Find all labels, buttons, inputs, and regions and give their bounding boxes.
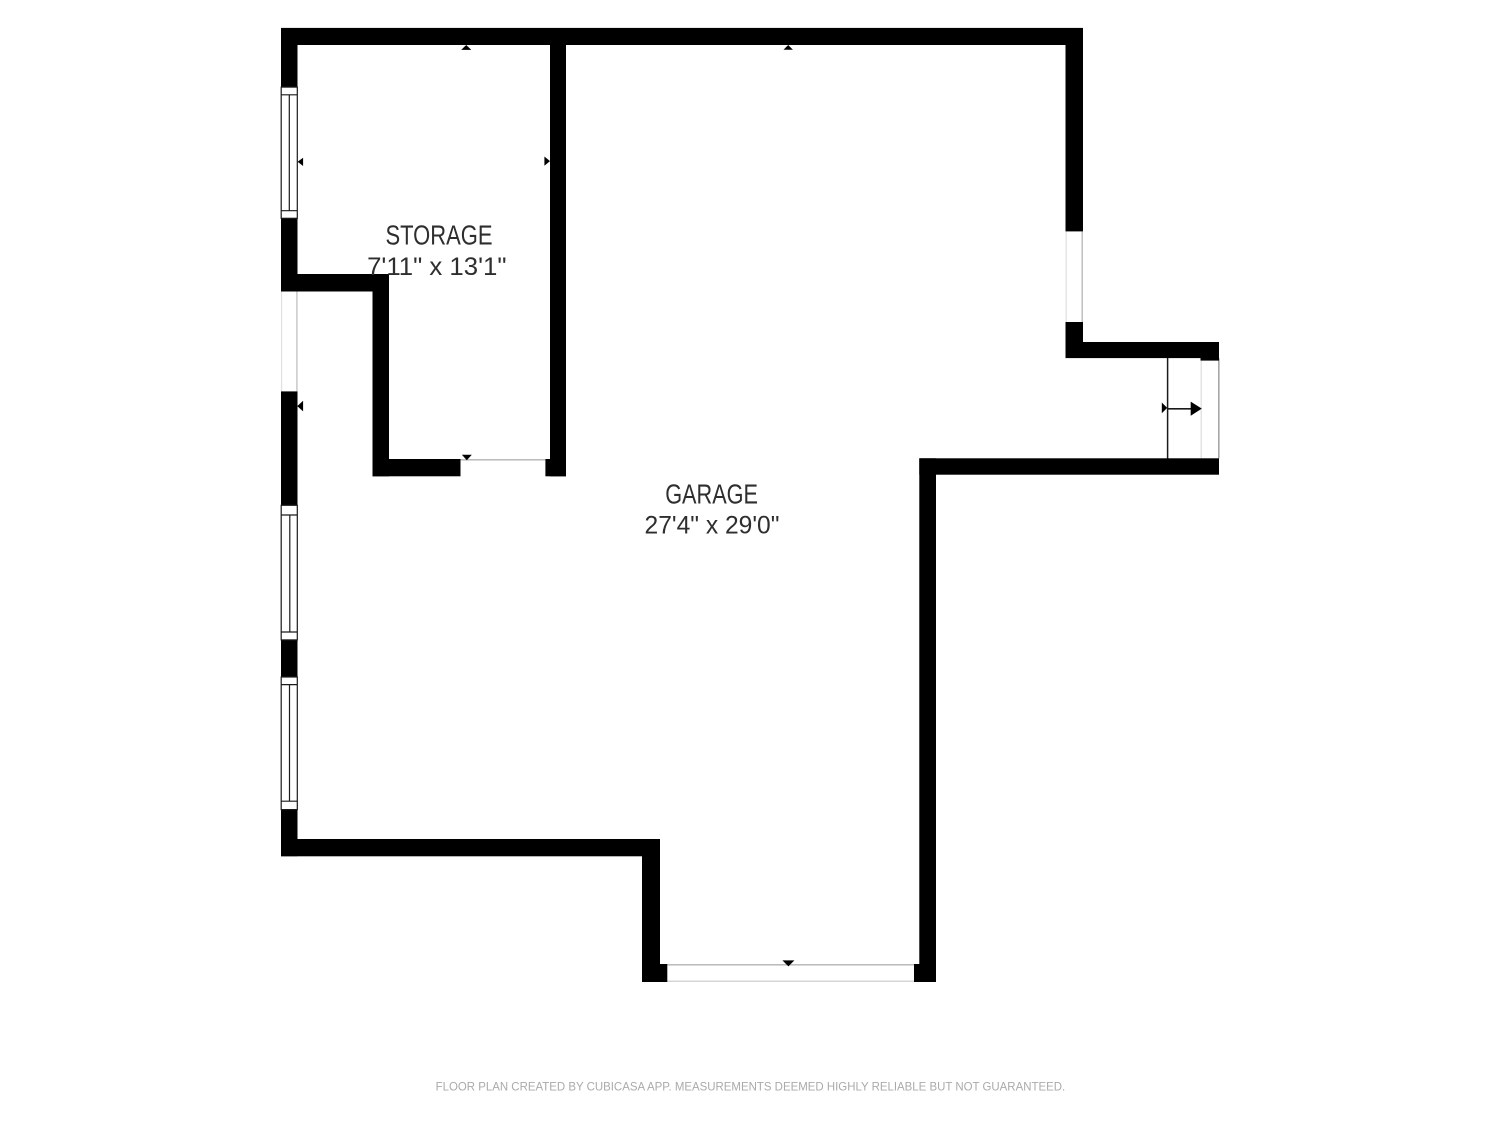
svg-text:GARAGE: GARAGE (665, 478, 758, 510)
svg-text:27'4" x 29'0": 27'4" x 29'0" (645, 511, 780, 539)
svg-text:FLOOR PLAN CREATED BY CUBICASA: FLOOR PLAN CREATED BY CUBICASA APP. MEAS… (436, 1080, 1066, 1094)
svg-text:7'11" x 13'1": 7'11" x 13'1" (367, 253, 506, 281)
svg-text:STORAGE: STORAGE (386, 218, 493, 250)
